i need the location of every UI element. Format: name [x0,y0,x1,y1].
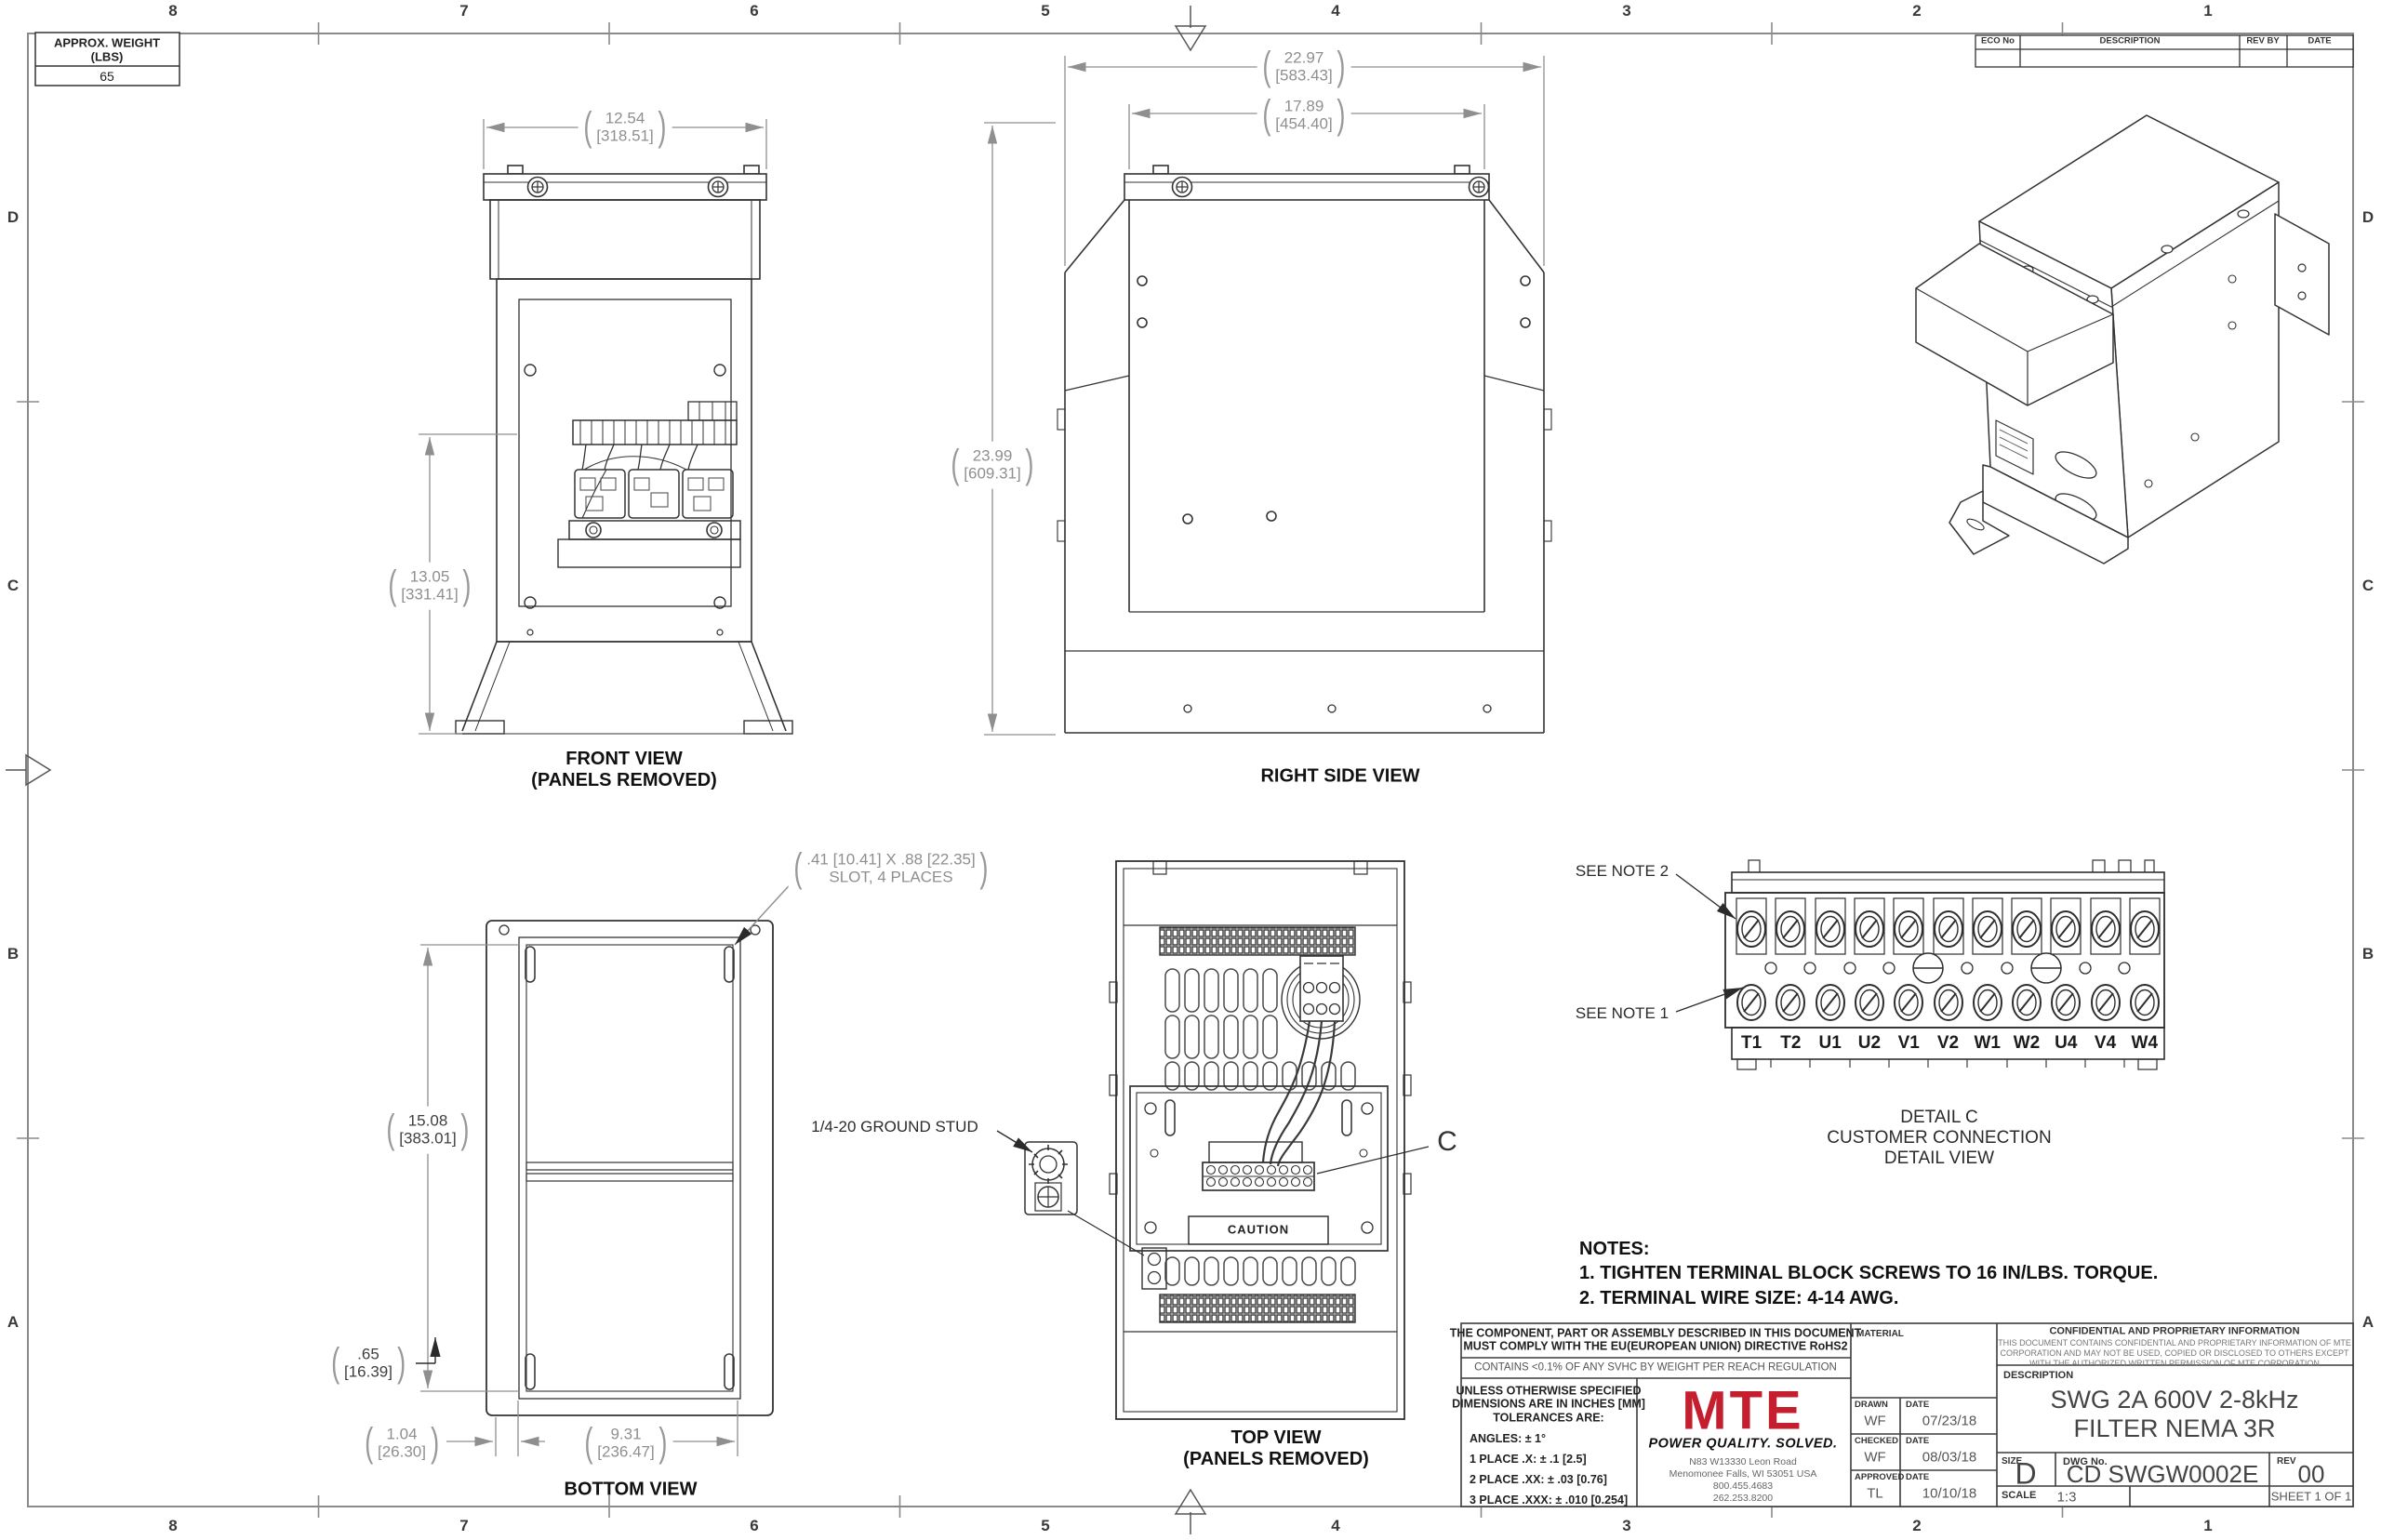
eco-col-eco-no: ECO No [1981,37,2015,47]
dwg-no-value: CD SWGW0002E [2067,1461,2259,1489]
mte-tagline: POWER QUALITY. SOLVED. [1648,1437,1837,1453]
dim-right-height: (23.99[609.31]) [946,442,1040,489]
drawing-sheet: 8 7 6 5 4 3 2 1 8 7 6 5 4 3 2 1 D C B A … [0,0,2381,1540]
drawn-name: WF [1864,1413,1885,1428]
eco-col-rev-by: REV BY [2246,37,2279,47]
zone-row-right-a: A [2362,1313,2374,1332]
zone-col-bot-2: 2 [1912,1517,1921,1535]
reach-statement: CONTAINS <0.1% OF ANY SVHC BY WEIGHT PER… [1474,1361,1837,1374]
approved-label: APPROVED [1855,1473,1904,1483]
zone-col-top-4: 4 [1331,2,1339,20]
tolerance-header: UNLESS OTHERWISE SPECIFIED DIMENSIONS AR… [1452,1384,1645,1424]
approved-name: TL [1867,1485,1883,1501]
terminal-v1: V1 [1889,1033,1928,1054]
paren-close: ) [658,104,667,152]
checked-date: 08/03/18 [1922,1449,1976,1465]
dim-bottom-edge: (.65[16.39]) [326,1340,410,1387]
zone-col-top-8: 8 [168,2,177,20]
dim-right-overall-width: (22.97[583.43]) [1257,44,1351,91]
isometric-view-art [1916,115,2329,564]
checked-name: WF [1864,1449,1885,1465]
note-1: 1. TIGHTEN TERMINAL BLOCK SCREWS TO 16 I… [1579,1261,2158,1285]
tolerance-1place: 1 PLACE .X: ± .1 [2.5] [1470,1453,1587,1466]
terminal-u1: U1 [1811,1033,1850,1054]
eco-col-description: DESCRIPTION [2100,37,2161,47]
zone-row-left-a: A [7,1313,19,1332]
note-2: 2. TERMINAL WIRE SIZE: 4-14 AWG. [1579,1286,2158,1310]
detail-c-caption: DETAIL C CUSTOMER CONNECTION DETAIL VIEW [1827,1108,2051,1169]
eco-col-date: DATE [2308,37,2331,47]
right-side-view-art [1057,166,1551,733]
tolerance-angles: ANGLES: ± 1° [1470,1432,1546,1445]
terminal-labels: T1 T2 U1 U2 V1 V2 W1 W2 U4 V4 W4 [1732,1029,2164,1058]
confidential-body: THIS DOCUMENT CONTAINS CONFIDENTIAL AND … [1998,1338,2351,1368]
weight-box-title-line1: APPROX. WEIGHT [54,37,160,51]
terminal-w1: W1 [1968,1033,2007,1054]
eco-table-grid [1975,35,2353,67]
mte-address: N83 W13330 Leon Road Menomonee Falls, WI… [1669,1456,1817,1506]
zone-col-bot-3: 3 [1622,1517,1630,1535]
zone-col-top-2: 2 [1912,2,1921,20]
ground-stud-label: 1/4-20 GROUND STUD [811,1118,978,1136]
zone-col-bot-4: 4 [1331,1517,1339,1535]
scale-value: 1:3 [2057,1489,2077,1505]
slot-note: (.41 [10.41] X .88 [22.35]SLOT, 4 PLACES… [789,845,994,893]
dim-right-inner-width: (17.89[454.40]) [1257,92,1351,139]
zone-row-left-c: C [7,577,19,595]
compliance-statement: THE COMPONENT, PART OR ASSEMBLY DESCRIBE… [1450,1327,1861,1354]
dim-front-height: (13.05[331.41]) [383,563,477,610]
drawn-label: DRAWN [1855,1401,1888,1411]
right-side-view-label: RIGHT SIDE VIEW [1260,766,1419,788]
dim-bottom-depth: (15.08[383.01]) [381,1107,475,1154]
see-note-2: SEE NOTE 2 [1576,862,1669,881]
terminal-t1: T1 [1732,1033,1771,1054]
bottom-view-art [486,921,773,1415]
tolerance-2place: 2 PLACE .XX: ± .03 [0.76] [1470,1473,1607,1486]
zone-col-bot-6: 6 [750,1517,758,1535]
checked-label: CHECKED [1855,1437,1898,1447]
dim-bottom-span: (9.31[236.47]) [579,1420,673,1467]
mte-logo: MTE [1682,1381,1803,1443]
bottom-view-label: BOTTOM VIEW [565,1480,698,1501]
zone-col-bot-8: 8 [168,1517,177,1535]
rev-label: REV [2277,1456,2296,1467]
ground-stud-art [1025,1142,1077,1215]
drawn-date-label: DATE [1906,1401,1929,1411]
scale-label: SCALE [2002,1490,2036,1502]
terminal-u2: U2 [1850,1033,1889,1054]
description-text: SWG 2A 600V 2-8kHz FILTER NEMA 3R [2050,1386,2298,1443]
checked-date-label: DATE [1906,1437,1929,1447]
zone-row-left-b: B [7,945,19,963]
front-view-label: FRONT VIEW(PANELS REMOVED) [531,749,717,791]
leader-lines [416,874,1743,1363]
drawn-date: 07/23/18 [1922,1413,1976,1428]
zone-row-right-b: B [2362,945,2374,963]
terminal-v2: V2 [1928,1033,1967,1054]
terminal-v4: V4 [2085,1033,2124,1054]
top-view-label: TOP VIEW(PANELS REMOVED) [1183,1427,1369,1470]
terminal-t2: T2 [1771,1033,1810,1054]
paren-open: ( [583,104,592,152]
confidential-title: CONFIDENTIAL AND PROPRIETARY INFORMATION [2049,1326,2299,1338]
approved-date-label: DATE [1906,1473,1929,1483]
notes-block: NOTES: 1. TIGHTEN TERMINAL BLOCK SCREWS … [1579,1237,2158,1310]
see-note-1: SEE NOTE 1 [1576,1004,1669,1023]
weight-box-title-line2: (LBS) [91,51,124,65]
front-view-art [456,166,792,734]
material-label: MATERIAL [1856,1329,1904,1340]
zone-col-top-1: 1 [2203,2,2212,20]
description-label: DESCRIPTION [2003,1370,2073,1382]
notes-title: NOTES: [1579,1237,2158,1261]
size-value: D [2015,1457,2036,1492]
terminal-w2: W2 [2007,1033,2046,1054]
zone-col-bot-7: 7 [459,1517,468,1535]
zone-col-top-3: 3 [1622,2,1630,20]
zone-col-top-7: 7 [459,2,468,20]
zone-row-right-c: C [2362,577,2374,595]
zone-row-right-d: D [2362,208,2374,227]
caution-label: CAUTION [1228,1224,1289,1238]
dim-bottom-offset: (1.04[26.30]) [359,1420,444,1467]
terminal-u4: U4 [2046,1033,2085,1054]
tolerance-3place: 3 PLACE .XXX: ± .010 [0.254] [1470,1494,1628,1507]
zone-row-left-d: D [7,208,19,227]
zone-col-bot-5: 5 [1041,1517,1049,1535]
detail-c-ref-letter: C [1437,1126,1457,1159]
dim-front-width: ( 12.54[318.51] ) [579,104,672,152]
sheet-number: SHEET 1 OF 1 [2271,1491,2351,1505]
weight-value: 65 [100,69,114,84]
zone-col-bot-1: 1 [2203,1517,2212,1535]
terminal-w4: W4 [2125,1033,2164,1054]
rev-value: 00 [2298,1461,2325,1489]
top-view-art [1110,861,1411,1419]
zone-col-top-5: 5 [1041,2,1049,20]
approved-date: 10/10/18 [1922,1485,1976,1501]
zone-col-top-6: 6 [750,2,758,20]
